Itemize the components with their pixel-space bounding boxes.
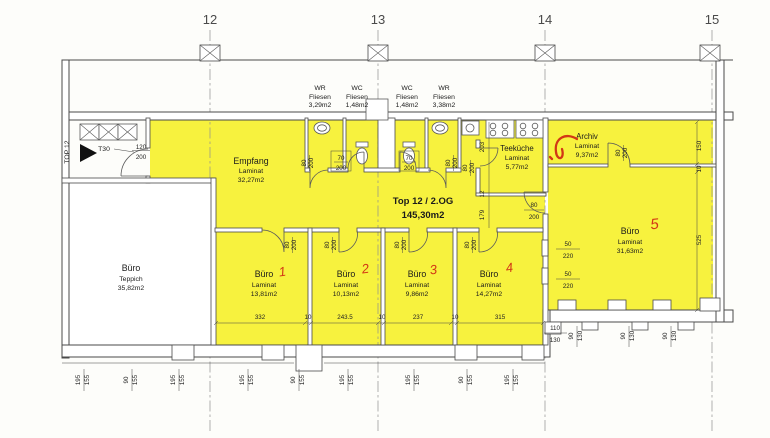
sill-r3 — [678, 322, 694, 330]
room-area: 3,29m2 — [309, 102, 332, 109]
dim-text: 110 — [550, 325, 560, 332]
dim-text: 332 — [255, 314, 266, 321]
dim-text: 237 — [413, 314, 424, 321]
stove-icon — [486, 120, 514, 138]
sill-3 — [455, 345, 477, 360]
wall-corr-e — [497, 228, 543, 232]
room-floor: Fliesen — [433, 94, 455, 101]
dim-text: 195 — [75, 374, 82, 385]
entrance-door-label: T30 — [98, 146, 110, 153]
dim-text: 200 — [308, 157, 315, 168]
room-area: 13,81m2 — [251, 291, 278, 298]
dim-text: 155 — [248, 374, 255, 385]
room-floor: Laminat — [334, 282, 358, 289]
dim-text: 90 — [620, 332, 627, 339]
room-area: 5,77m2 — [506, 164, 529, 171]
plumbing-shaft — [366, 99, 388, 120]
room-label-buero1: Büro — [255, 269, 274, 279]
pier-3 — [653, 300, 671, 310]
dim-text: 200 — [471, 239, 478, 250]
room-label-buero4: Büro — [480, 269, 499, 279]
column-center-bottom — [296, 345, 322, 371]
room-area: 9,37m2 — [576, 152, 599, 159]
dim-text: 200 — [336, 165, 347, 172]
room-area: 31,63m2 — [617, 248, 644, 255]
dim-text: 525 — [696, 234, 703, 245]
room-area: 1,48m2 — [396, 102, 419, 109]
room-label-wc-left: WC — [351, 85, 362, 92]
dim-text: 70 — [338, 155, 345, 162]
dim-text: 80 — [301, 159, 308, 166]
dim-text: 10 — [696, 165, 703, 172]
room-floor: Laminat — [252, 282, 276, 289]
room-floor: Fliesen — [346, 94, 368, 101]
room-area: 32,27m2 — [238, 177, 265, 184]
room-area: 1,48m2 — [346, 102, 369, 109]
wall-bueroT-right — [211, 178, 216, 345]
wall-archiv-a — [548, 164, 608, 167]
wall-left — [62, 60, 69, 358]
floor-plan-drawing: 12 13 14 15 WR Fliesen 3,29m2 WC Fliesen… — [0, 0, 770, 438]
dim-text: 200 — [291, 239, 298, 250]
dim-text: 200 — [136, 154, 147, 161]
corner-column — [700, 298, 720, 311]
dim-text: 80 — [615, 149, 622, 156]
wall-rightblock-a — [543, 118, 548, 192]
highlight-right-block — [548, 118, 713, 310]
wall-bueroT-top — [62, 178, 215, 183]
dim-text: 195 — [405, 374, 412, 385]
dim-text: 195 — [504, 374, 511, 385]
dim-text: 155 — [414, 374, 421, 385]
dim-text: 10 — [452, 314, 459, 321]
floorplan-page: 12 13 14 15 WR Fliesen 3,29m2 WC Fliesen… — [0, 0, 770, 438]
dim-text: 80 — [445, 159, 452, 166]
dim-text: 80 — [394, 241, 401, 248]
dim-text: 195 — [170, 374, 177, 385]
entrance-arrow-icon — [80, 144, 97, 162]
room-area: 10,13m2 — [333, 291, 360, 298]
dim-text: 80 — [464, 241, 471, 248]
dim-text: 200 — [622, 147, 629, 158]
room-label-buero-teppich: Büro — [122, 263, 141, 273]
dim-text: 195 — [339, 374, 346, 385]
room-area: 35,82m2 — [118, 285, 145, 292]
wall-top-main — [62, 112, 733, 120]
dim-text: 195 — [239, 374, 246, 385]
dim-text: 200 — [469, 162, 476, 173]
dim-text: 10 — [379, 314, 386, 321]
room-label-archiv: Archiv — [576, 132, 598, 141]
dim-text: 90 — [568, 332, 575, 339]
dim-text: 220 — [563, 253, 574, 260]
room-floor: Fliesen — [396, 94, 418, 101]
pier-1 — [558, 300, 576, 310]
sill-2 — [262, 345, 284, 360]
room-floor: Teppich — [119, 276, 143, 283]
room-label-buero3: Büro — [408, 269, 427, 279]
dim-text: 203 — [479, 141, 486, 152]
sill-1 — [172, 345, 194, 360]
dim-text: 80 — [284, 241, 291, 248]
dim-text: 155 — [299, 374, 306, 385]
dim-text: 243.5 — [337, 314, 353, 321]
columns — [200, 45, 720, 61]
dim-text: 80 — [462, 164, 469, 171]
grid-label-15: 15 — [705, 12, 719, 27]
sill-4 — [522, 345, 544, 360]
dim-text: 120 — [136, 144, 147, 151]
dim-text: 80 — [531, 202, 538, 209]
dim-text: 80 — [324, 241, 331, 248]
dim-text: 200 — [331, 239, 338, 250]
room-area: 3,38m2 — [433, 102, 456, 109]
grid-labels: 12 13 14 15 — [203, 12, 719, 27]
wall-entry-upper — [146, 118, 150, 148]
dim-text: 220 — [563, 283, 574, 290]
dim-text: 50 — [565, 271, 572, 278]
wall-b2-b3 — [381, 228, 385, 345]
room-floor: Laminat — [618, 239, 642, 246]
dim-text: 200 — [401, 239, 408, 250]
dim-text: 315 — [495, 314, 506, 321]
dim-text: 200 — [529, 214, 540, 221]
toilet-icon — [403, 142, 415, 147]
room-label-buero5: Büro — [621, 226, 640, 236]
entrance-unit-label: TOP 12 — [64, 140, 71, 163]
dim-text: 155 — [467, 374, 474, 385]
room-label-wc-right: WC — [401, 85, 412, 92]
grid-label-12: 12 — [203, 12, 217, 27]
dim-text: 179 — [479, 209, 486, 220]
grid-label-14: 14 — [538, 12, 552, 27]
toilet-icon — [356, 142, 368, 147]
dim-text: 155 — [132, 374, 139, 385]
dim-text: 155 — [513, 374, 520, 385]
counter-icon — [516, 120, 543, 138]
room-floor: Laminat — [405, 282, 429, 289]
dim-text: 130 — [671, 330, 678, 341]
wall-bottom-right — [543, 310, 733, 322]
room-floor: Laminat — [239, 168, 263, 175]
sill-r2 — [632, 322, 648, 330]
dim-text: 155 — [84, 374, 91, 385]
room-floor: Fliesen — [309, 94, 331, 101]
room-area: 14,27m2 — [476, 291, 503, 298]
window-mark-b — [542, 268, 548, 284]
room-floor: Laminat — [505, 155, 529, 162]
shaft-wc — [378, 118, 395, 170]
wall-b3-b4 — [453, 228, 457, 345]
dim-text: 12 — [479, 190, 486, 197]
dim-text: 200 — [404, 165, 415, 172]
dim-text: 90 — [290, 376, 297, 383]
wall-b1-b2 — [308, 228, 312, 345]
room-label-wr-left: WR — [314, 85, 325, 92]
dim-text: 90 — [662, 332, 669, 339]
room-floor: Laminat — [575, 143, 599, 150]
dim-text: 50 — [565, 241, 572, 248]
grid-label-13: 13 — [371, 12, 385, 27]
wall-bath-bottom-c — [364, 168, 400, 172]
room-floor: Laminat — [477, 282, 501, 289]
sill-r1 — [582, 322, 598, 330]
dim-text: 90 — [123, 376, 130, 383]
unit-area: 145,30m2 — [402, 210, 445, 221]
wall-tk-bottom — [476, 193, 546, 196]
wall-corr-a — [215, 228, 262, 232]
room-label-wr-right: WR — [438, 85, 449, 92]
unit-title: Top 12 / 2.OG — [393, 196, 454, 207]
dim-text: 90 — [458, 376, 465, 383]
red-dot — [550, 157, 552, 159]
dim-text: 155 — [179, 374, 186, 385]
wall-wc2-right — [425, 118, 428, 170]
wall-archiv-b — [630, 164, 716, 167]
dim-text: 150 — [696, 140, 703, 151]
dim-text: 130 — [550, 337, 561, 344]
room-area: 9,86m2 — [406, 291, 429, 298]
dim-text: 10 — [305, 314, 312, 321]
room-label-buero2: Büro — [337, 269, 356, 279]
window-mark-a — [542, 240, 548, 256]
room-label-empfang: Empfang — [233, 156, 268, 166]
dim-text: 155 — [348, 374, 355, 385]
dim-text: 130 — [577, 330, 584, 341]
room-label-teekueche: Teeküche — [500, 144, 533, 153]
dim-text: 130 — [629, 330, 636, 341]
dim-text: 200 — [452, 157, 459, 168]
dim-text: 70 — [406, 155, 413, 162]
wall-right — [716, 60, 724, 322]
wall-bath-bottom-d — [416, 168, 430, 172]
pier-2 — [608, 300, 626, 310]
